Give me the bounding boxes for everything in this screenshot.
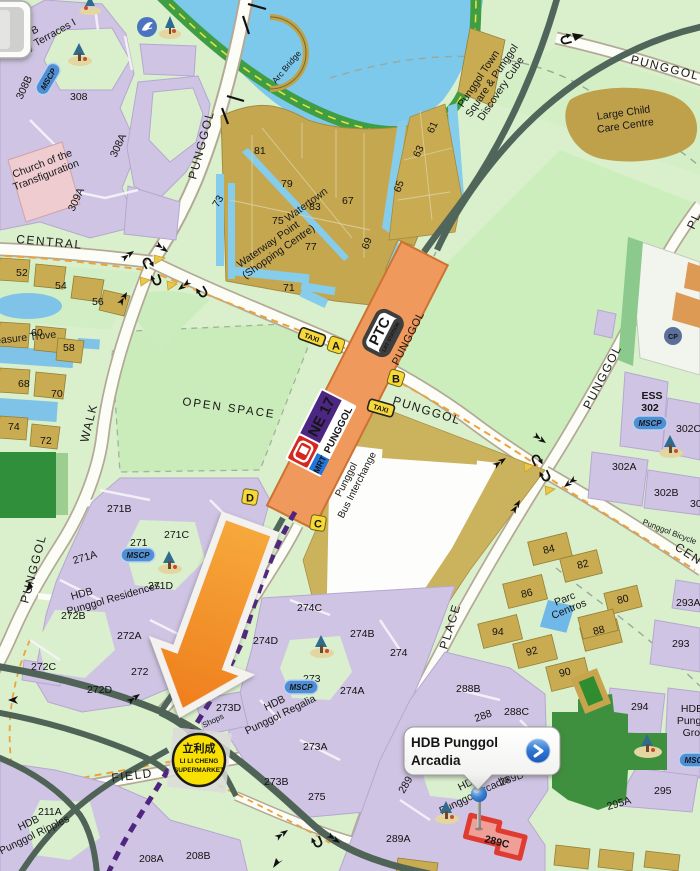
svg-text:HDB: HDB [681, 703, 700, 715]
svg-text:272C: 272C [31, 661, 57, 673]
svg-text:273A: 273A [303, 741, 328, 753]
svg-text:77: 77 [305, 241, 317, 253]
svg-text:274D: 274D [253, 635, 279, 647]
svg-text:54: 54 [55, 280, 67, 292]
svg-text:294: 294 [631, 701, 649, 713]
svg-text:303: 303 [690, 498, 700, 510]
svg-text:288C: 288C [504, 706, 530, 718]
svg-text:A: A [332, 341, 340, 353]
svg-text:272: 272 [131, 666, 149, 678]
svg-text:274A: 274A [340, 685, 365, 697]
svg-text:274C: 274C [297, 602, 323, 614]
svg-text:302B: 302B [654, 487, 679, 499]
svg-text:Pungg: Pungg [677, 715, 700, 727]
svg-text:74: 74 [8, 421, 20, 433]
svg-text:Arcadia: Arcadia [411, 753, 461, 768]
svg-text:293A: 293A [676, 597, 700, 609]
svg-text:274B: 274B [350, 628, 375, 640]
svg-text:67: 67 [342, 195, 354, 207]
svg-text:ESS: ESS [641, 390, 662, 402]
svg-text:271B: 271B [107, 503, 132, 515]
svg-text:58: 58 [63, 342, 75, 354]
svg-text:MSCP: MSCP [126, 551, 150, 560]
svg-text:60: 60 [31, 327, 43, 339]
svg-text:HDB Punggol: HDB Punggol [411, 735, 498, 750]
svg-text:273B: 273B [264, 776, 289, 788]
svg-text:72: 72 [40, 435, 52, 447]
svg-text:302C: 302C [676, 423, 700, 435]
svg-text:SUPERMARKET: SUPERMARKET [174, 767, 224, 774]
svg-text:MSCP: MSCP [289, 683, 313, 692]
svg-text:83: 83 [309, 201, 321, 213]
svg-text:308: 308 [70, 91, 88, 103]
svg-text:81: 81 [254, 145, 266, 157]
svg-text:CP: CP [668, 334, 678, 341]
svg-text:271D: 271D [148, 580, 174, 592]
svg-text:288B: 288B [456, 683, 481, 695]
svg-text:275: 275 [308, 791, 326, 803]
svg-text:272A: 272A [117, 630, 142, 642]
svg-text:56: 56 [92, 296, 104, 308]
svg-text:MSCP: MSCP [638, 419, 662, 428]
svg-text:71: 71 [283, 282, 295, 294]
svg-text:MSCP: MSCP [684, 756, 700, 765]
svg-text:211A: 211A [38, 806, 62, 818]
svg-text:272B: 272B [61, 610, 86, 622]
svg-text:68: 68 [18, 378, 30, 390]
svg-text:LI LI CHENG: LI LI CHENG [180, 758, 219, 765]
svg-text:75: 75 [272, 215, 284, 227]
svg-text:271C: 271C [164, 529, 190, 541]
svg-text:94: 94 [492, 626, 504, 638]
svg-text:302A: 302A [612, 461, 637, 473]
svg-text:208A: 208A [139, 853, 164, 865]
svg-text:D: D [246, 493, 254, 505]
svg-text:293: 293 [672, 638, 690, 650]
svg-text:立利成: 立利成 [183, 741, 216, 755]
svg-text:272D: 272D [87, 684, 113, 696]
svg-text:302: 302 [641, 402, 659, 414]
svg-text:Grov: Grov [683, 727, 700, 739]
svg-text:274: 274 [390, 647, 408, 659]
svg-text:52: 52 [16, 267, 28, 279]
svg-text:273D: 273D [216, 702, 242, 714]
svg-text:B: B [392, 374, 400, 386]
svg-text:295: 295 [654, 785, 672, 797]
svg-text:C: C [314, 519, 322, 531]
svg-text:271: 271 [130, 537, 148, 549]
svg-text:79: 79 [281, 178, 293, 190]
svg-text:70: 70 [51, 388, 63, 400]
svg-text:289A: 289A [386, 833, 411, 845]
svg-text:208B: 208B [186, 850, 211, 862]
